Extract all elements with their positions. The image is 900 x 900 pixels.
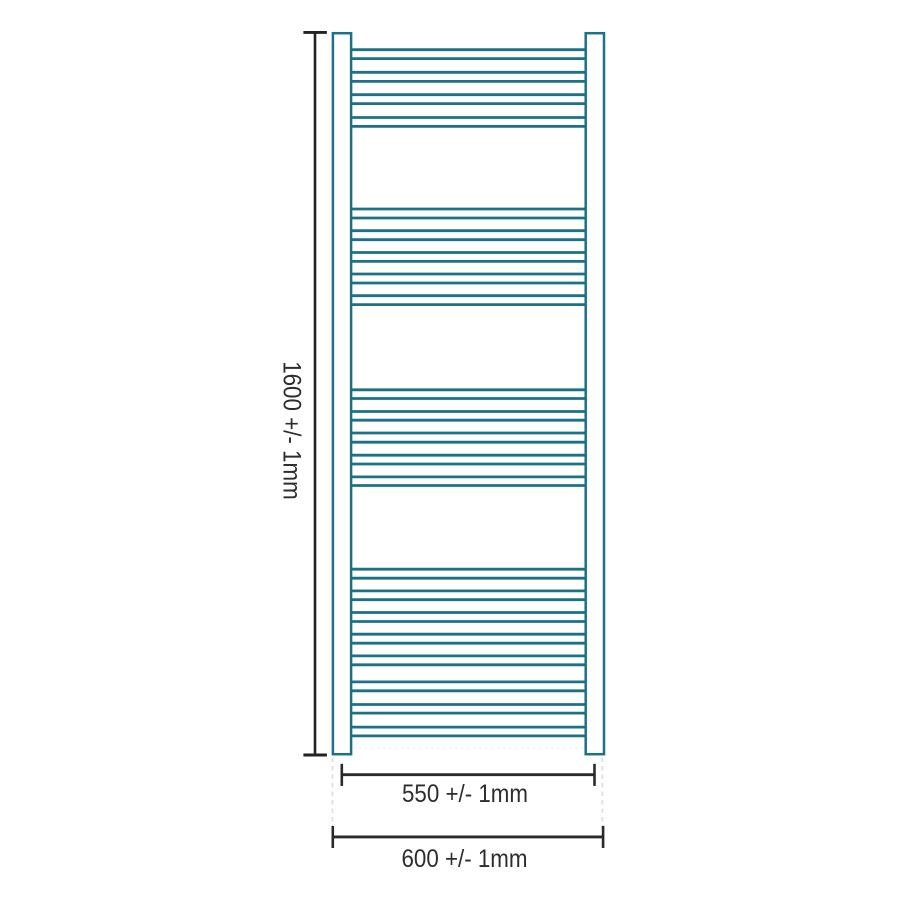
svg-text:550 +/- 1mm: 550 +/- 1mm bbox=[402, 780, 528, 808]
svg-text:600 +/- 1mm: 600 +/- 1mm bbox=[402, 845, 528, 873]
svg-text:1600 +/- 1mm: 1600 +/- 1mm bbox=[278, 361, 306, 500]
